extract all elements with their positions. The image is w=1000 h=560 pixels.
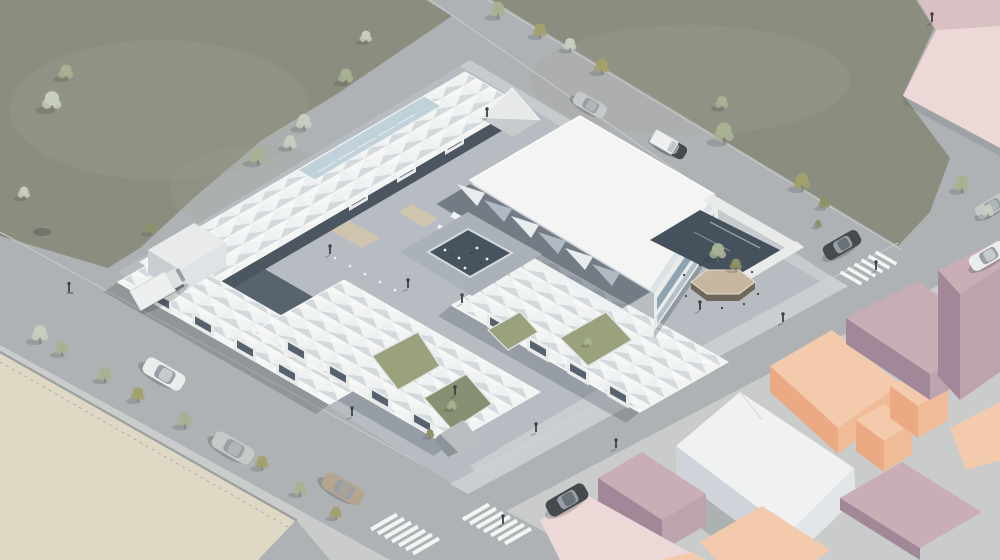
rendering-canvas: [0, 0, 1000, 560]
aerial-rendering: [0, 0, 1000, 560]
grass-mound: [33, 228, 51, 236]
